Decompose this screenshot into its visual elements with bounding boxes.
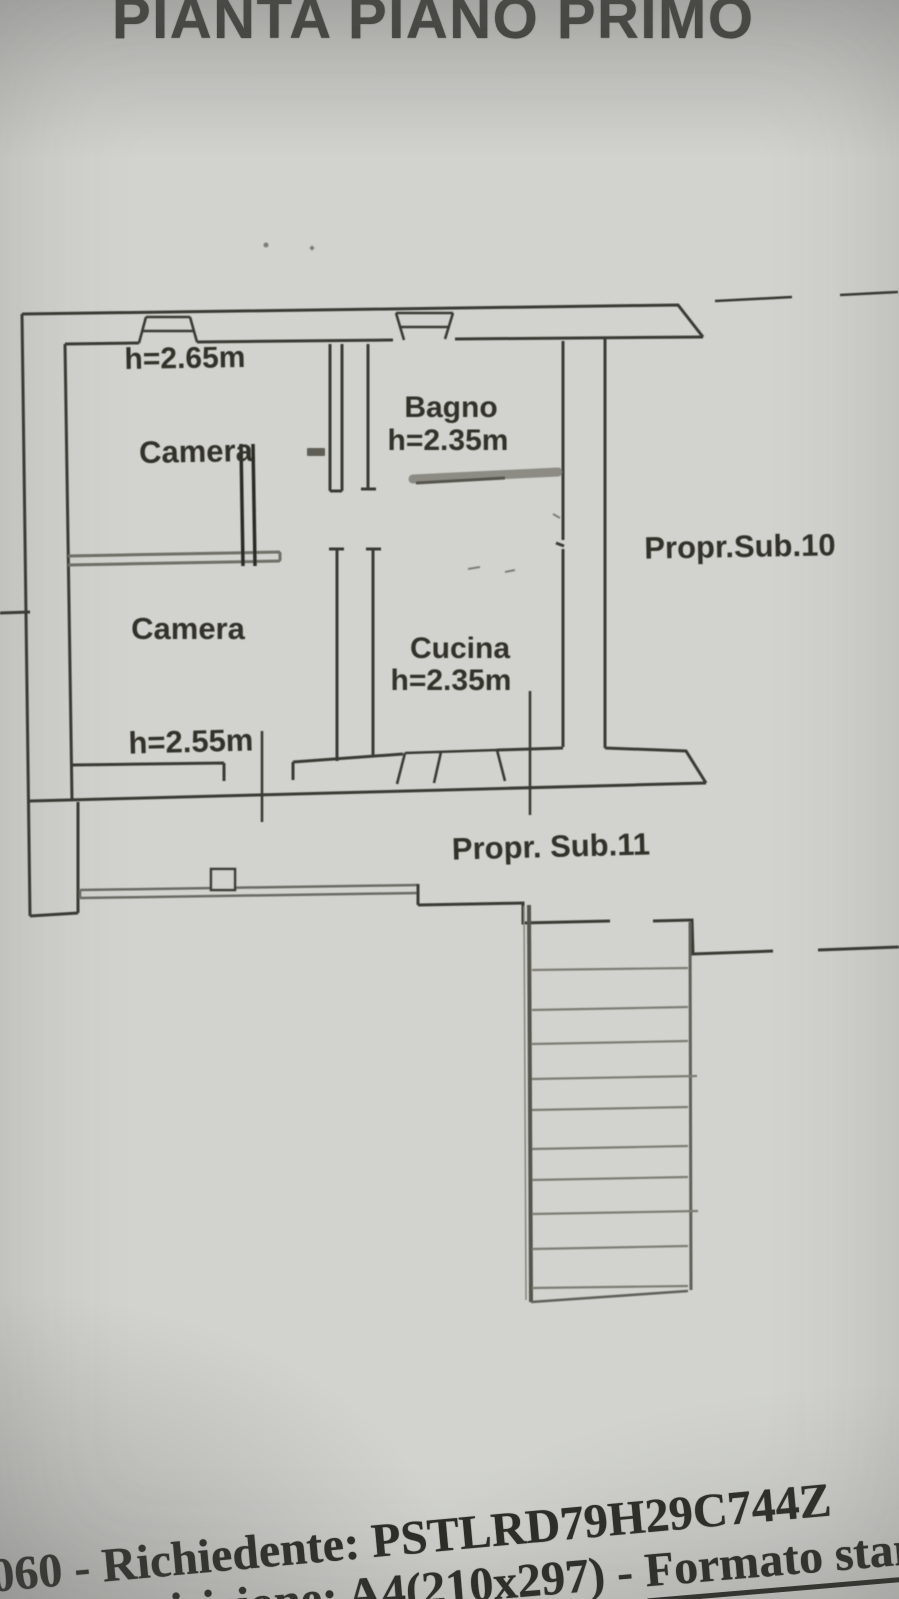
- right-inner-wall: [556, 341, 564, 747]
- stair-bottom: [531, 1291, 688, 1302]
- wall-bagno-left: [361, 344, 376, 489]
- wall-camera-bagno: [330, 344, 342, 491]
- stair-left-wall-inner: [524, 906, 526, 1300]
- stair-treads: [532, 968, 698, 1288]
- wall-camera1-camera2-pencil: [68, 552, 280, 565]
- windows: [139, 313, 505, 784]
- window-cucina-bottom: [397, 750, 505, 784]
- room-label-camera-top: Camera: [139, 433, 254, 470]
- terrace-step-line: [418, 884, 899, 954]
- room-height-camera-bottom: h=2.55m: [128, 722, 254, 760]
- property-label-sub10: Propr.Sub.10: [644, 527, 836, 565]
- floor-plan-drawing: h=2.65m Camera Bagno h=2.35m Camera h=2.…: [0, 0, 899, 1599]
- staircase: [524, 905, 698, 1302]
- room-label-bagno: Bagno: [404, 391, 497, 424]
- left-outer-wall: [22, 314, 30, 916]
- railing-pencil: [80, 885, 418, 898]
- stair-right-wall: [690, 922, 691, 1290]
- door-leaf-mark: [307, 448, 325, 456]
- bottom-right-corner: [605, 748, 706, 783]
- room-labels: h=2.65m Camera Bagno h=2.35m Camera h=2.…: [124, 341, 511, 761]
- window-bagno: [396, 313, 453, 340]
- left-edge-tick: [0, 612, 30, 613]
- top-outer-wall: [22, 305, 703, 337]
- room-height-cucina: h=2.35m: [391, 664, 512, 697]
- wall-camera2-cucina: [329, 549, 381, 761]
- bottom-outer-wall: [30, 783, 706, 801]
- room-height-camera-top: h=2.65m: [124, 341, 245, 376]
- property-label-sub11: Propr. Sub.11: [451, 826, 650, 866]
- stair-left-wall: [529, 905, 531, 1302]
- window-camera-top: [139, 317, 197, 343]
- left-inner-wall: [30, 344, 78, 916]
- outer-walls: [0, 292, 898, 916]
- top-wall-dashed-continuation: [715, 292, 898, 301]
- room-label-cucina: Cucina: [410, 632, 510, 665]
- balcony-boundary: [80, 869, 899, 954]
- room-height-bagno: h=2.35m: [388, 424, 509, 457]
- railing-post: [211, 869, 235, 890]
- scanned-floorplan-page: PIANTA PIANO PRIMO: [0, 0, 899, 1599]
- room-label-camera-bottom: Camera: [131, 611, 245, 646]
